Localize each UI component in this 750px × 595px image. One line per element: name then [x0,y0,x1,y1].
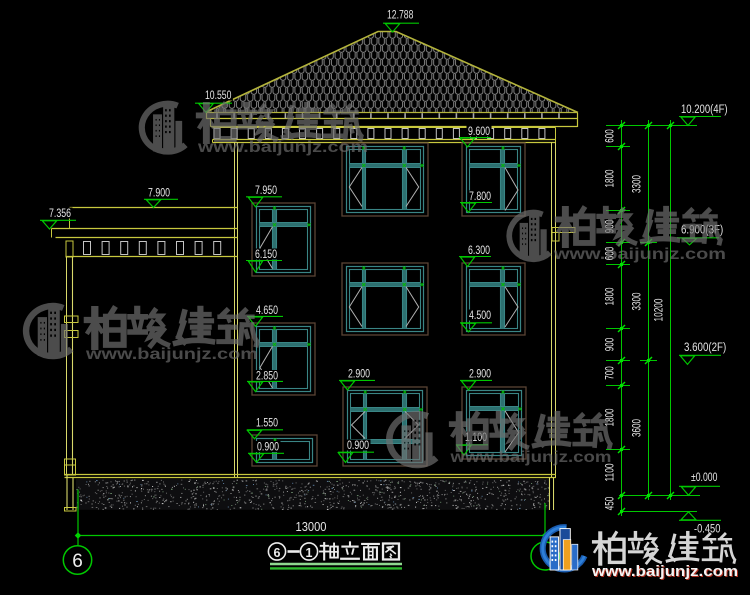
svg-text:7.950: 7.950 [255,185,277,197]
svg-text:7.900: 7.900 [148,188,170,200]
svg-text:900: 900 [605,338,617,352]
svg-text:9.600: 9.600 [468,126,490,138]
svg-text:12.788: 12.788 [387,10,413,22]
svg-text:3300: 3300 [632,175,644,193]
svg-text:±0.000: ±0.000 [691,472,717,484]
svg-text:10.550: 10.550 [205,90,231,102]
svg-text:2.900: 2.900 [469,369,491,381]
svg-text:700: 700 [605,366,617,380]
svg-text:13000: 13000 [296,520,327,534]
svg-text:2.850: 2.850 [256,371,278,383]
svg-text:4.500: 4.500 [469,310,491,322]
svg-text:7.356: 7.356 [49,208,71,220]
svg-text:4.650: 4.650 [256,305,278,317]
svg-text:www.baijunjz.com: www.baijunjz.com [591,564,738,580]
svg-text:3.600(2F): 3.600(2F) [684,342,726,354]
svg-text:2.900: 2.900 [348,369,370,381]
svg-text:10200: 10200 [654,299,666,322]
svg-text:1800: 1800 [605,409,617,427]
svg-text:www.baijunjz.com: www.baijunjz.com [197,139,368,156]
svg-text:6: 6 [72,551,83,572]
svg-text:1800: 1800 [605,170,617,188]
svg-text:1800: 1800 [605,288,617,306]
svg-text:450: 450 [605,497,617,511]
svg-text:6: 6 [274,546,281,560]
svg-text:6.150: 6.150 [255,249,277,261]
svg-text:www.baijunjz.com: www.baijunjz.com [85,346,258,363]
svg-text:1100: 1100 [605,464,617,482]
svg-text:7.800: 7.800 [469,191,491,203]
svg-text:3600: 3600 [632,419,644,437]
svg-text:-0.450: -0.450 [694,524,720,536]
svg-text:0.900: 0.900 [347,440,369,452]
svg-text:600: 600 [605,129,617,143]
svg-text:1.550: 1.550 [256,418,278,430]
svg-text:3300: 3300 [632,293,644,311]
svg-text:10.200(4F): 10.200(4F) [681,104,728,116]
svg-text:1: 1 [306,546,313,560]
svg-text:6.300: 6.300 [468,245,490,257]
svg-text:www.baijunjz.com: www.baijunjz.com [553,246,726,263]
svg-text:0.900: 0.900 [257,442,279,454]
svg-text:www.baijunjz.com: www.baijunjz.com [449,449,611,466]
